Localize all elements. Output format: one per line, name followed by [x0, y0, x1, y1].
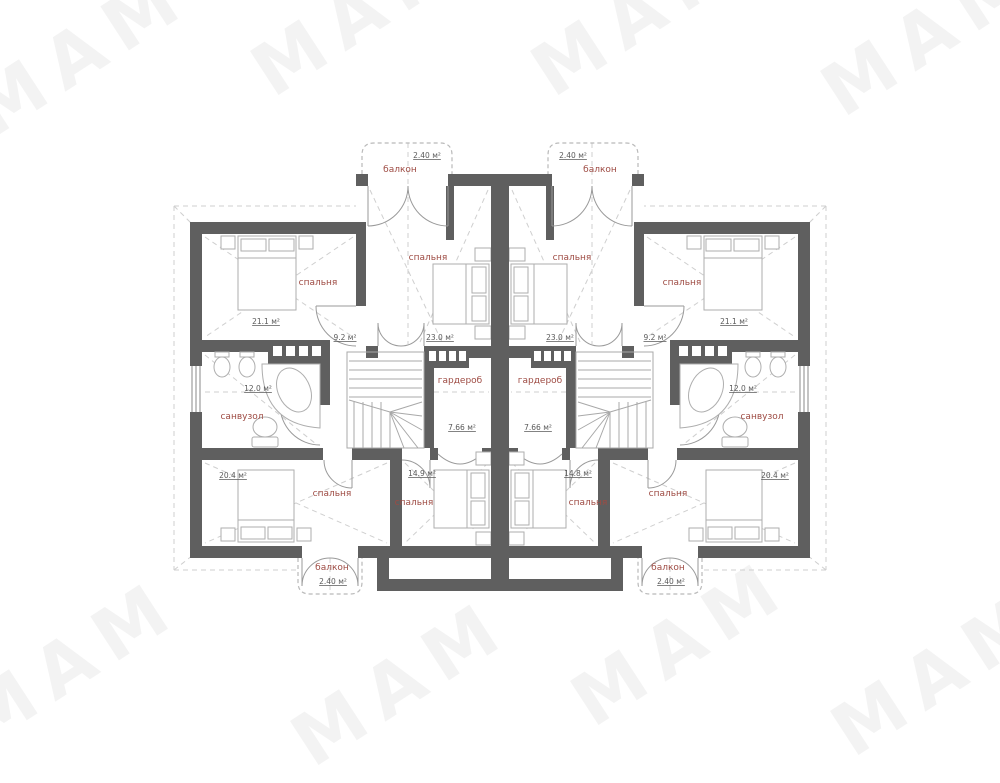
room-area-bedroom: 20.4 м² — [761, 471, 789, 480]
room-area-balcony-top: 2.40 м² — [413, 151, 441, 160]
room-label-bedroom: спальня — [553, 253, 592, 263]
room-label-bedroom: спальня — [395, 498, 434, 508]
party-wall — [491, 174, 509, 591]
room-label-bedroom: спальня — [663, 278, 702, 288]
room-label-balcony-top: балкон — [383, 165, 417, 175]
right-unit-geometry — [500, 143, 826, 594]
room-area-bathroom: 12.0 м² — [244, 384, 272, 393]
room-area-bedroom: 20.4 м² — [219, 471, 247, 480]
room-area-balcony-bottom: 2.40 м² — [657, 577, 685, 586]
room-label-bathroom: санвузол — [740, 412, 783, 422]
room-label-balcony-top: балкон — [583, 165, 617, 175]
room-label-wardrobe: гардероб — [438, 376, 483, 386]
room-label-balcony-bottom: балкон — [315, 563, 349, 573]
room-label-bedroom: спальня — [313, 489, 352, 499]
room-label-balcony-bottom: балкон — [651, 563, 685, 573]
room-area-bedroom: 21.1 м² — [720, 317, 748, 326]
left-unit-geometry — [174, 143, 500, 594]
room-label-wardrobe: гардероб — [518, 376, 563, 386]
room-area-bedroom: 23.0 м² — [546, 333, 574, 342]
room-label-bedroom: спальня — [409, 253, 448, 263]
room-area-balcony-bottom: 2.40 м² — [319, 577, 347, 586]
floor-plan: балкон 2.40 м² спальня 21.1 м² спальня 2… — [0, 0, 1000, 750]
room-area-wardrobe: 7.66 м² — [524, 423, 552, 432]
room-area-balcony-top: 2.40 м² — [559, 151, 587, 160]
room-area-bedroom: 21.1 м² — [252, 317, 280, 326]
room-area-wardrobe: 7.66 м² — [448, 423, 476, 432]
room-area-bedroom: 14.9 м² — [408, 469, 436, 478]
room-area-bedroom: 23.0 м² — [426, 333, 454, 342]
room-area-bathroom: 12.0 м² — [729, 384, 757, 393]
room-label-bedroom: спальня — [649, 489, 688, 499]
room-label-bathroom: санвузол — [220, 412, 263, 422]
room-area-hall: 9.2 м² — [644, 333, 667, 342]
room-area-bedroom: 14.8 м² — [564, 469, 592, 478]
room-label-bedroom: спальня — [569, 498, 608, 508]
room-label-bedroom: спальня — [299, 278, 338, 288]
room-area-hall: 9.2 м² — [334, 333, 357, 342]
